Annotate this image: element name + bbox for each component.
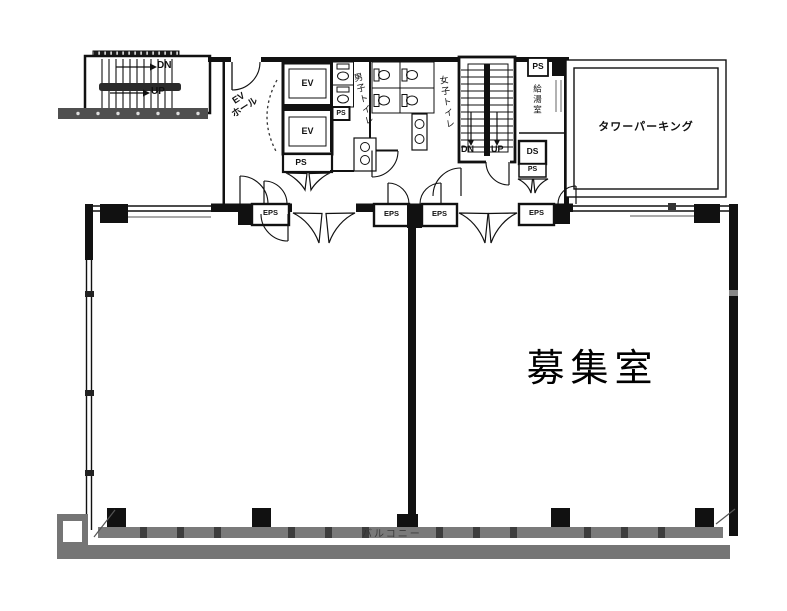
exterior-stair: [58, 51, 210, 119]
interior-stair-dn-label: DN: [461, 145, 474, 154]
double-door-leaf: [489, 213, 518, 243]
exterior-stair-dn-label: DN: [157, 61, 171, 71]
elevator-ps-label: PS: [285, 158, 317, 167]
column: [695, 508, 714, 527]
eps-label-4: EPS: [519, 209, 554, 217]
double-door-leaf: [459, 213, 488, 243]
stair-divider: [484, 64, 490, 156]
double-door-leaf: [326, 213, 355, 243]
kitchenette-label: 給湯室: [533, 84, 542, 116]
column: [407, 204, 422, 228]
utility-ps-top-label: PS: [528, 62, 548, 71]
stair-base-band: [58, 108, 208, 119]
wall-center: [408, 226, 416, 516]
balcony-slab: [57, 545, 730, 559]
double-door-leaf: [518, 179, 533, 193]
interior-stair-up-label: UP: [491, 145, 504, 154]
elevator-bottom-label: EV: [283, 127, 332, 136]
ds-label: DS: [519, 147, 546, 156]
column: [252, 508, 271, 527]
wall-east: [729, 204, 738, 536]
floor-plan-page: DN UP EV ホール EV EV PS PS 男子トイレ 女子トイレ DN …: [0, 0, 787, 611]
utility-ps-bottom-label: PS: [519, 166, 546, 173]
floor-plan-drawing: [0, 0, 787, 611]
eps-label-3: EPS: [422, 210, 457, 218]
column: [694, 204, 720, 223]
door-arc-corridor: [388, 183, 409, 204]
stair-landing: [99, 83, 181, 91]
tower-parking-label: タワーパーキング: [570, 122, 722, 133]
balcony-label: バルコニー: [362, 530, 422, 540]
interior-stair: [459, 57, 515, 185]
double-door-leaf: [534, 179, 549, 193]
column: [100, 204, 128, 223]
mens-ps-label: PS: [333, 110, 349, 117]
double-door-leaf: [293, 213, 322, 243]
double-door-leaf: [309, 173, 330, 190]
vacant-room-label: 募集室: [510, 350, 675, 388]
elevator-top-label: EV: [283, 79, 332, 88]
double-door-leaf: [286, 173, 307, 190]
column: [551, 508, 570, 527]
exterior-stair-up-label: UP: [151, 87, 165, 97]
door-arc-corridor: [433, 168, 461, 196]
eps-label-1: EPS: [252, 209, 289, 217]
door-arc-stair: [486, 162, 509, 185]
eps-label-2: EPS: [374, 210, 409, 218]
door-arc-corridor: [420, 183, 441, 204]
